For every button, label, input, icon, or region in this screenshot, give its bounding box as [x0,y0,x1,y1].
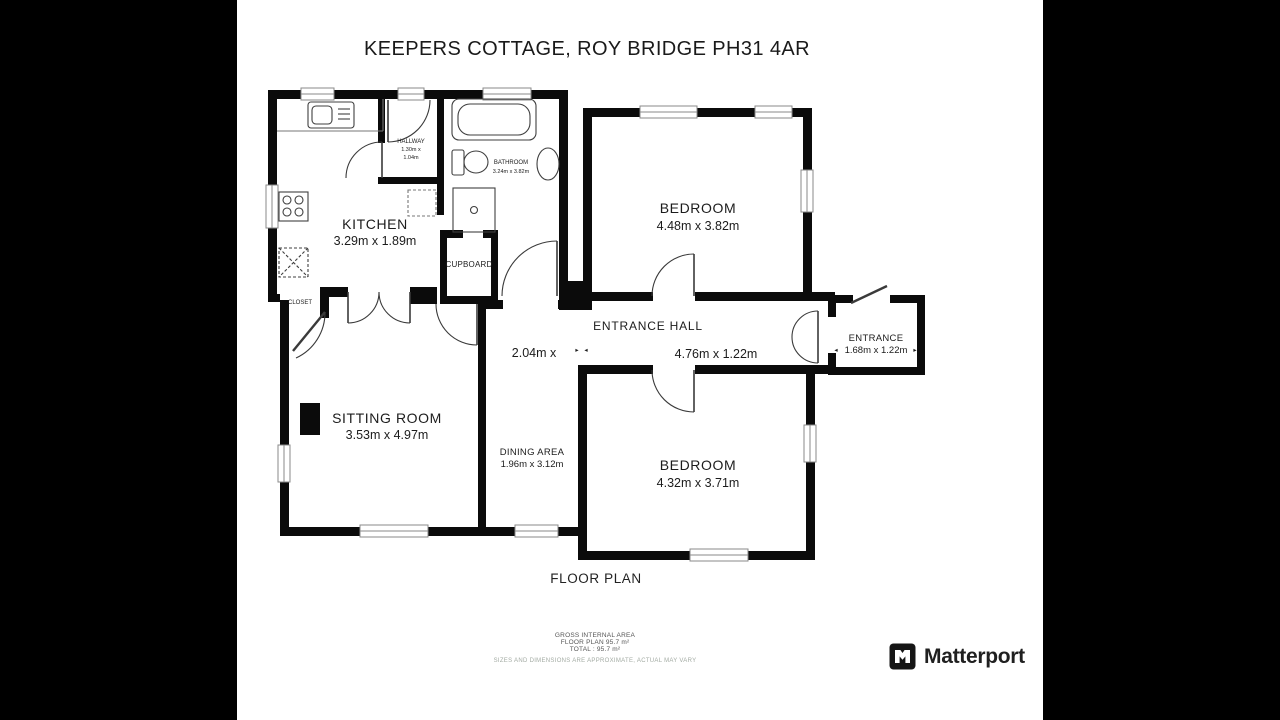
screenshot-stage: KEEPERS COTTAGE, ROY BRIDGE PH31 4AR [0,0,1280,720]
toilet [452,150,488,175]
basin [537,148,559,180]
room-labels-group: KITCHEN 3.29m x 1.89m HALLWAY 1.30m x 1.… [288,139,917,490]
bathroom-label: BATHROOM [494,160,528,166]
entrance-dim-arrow-left: ◂ [834,347,838,354]
entrance-dims: 1.68m x 1.22m [845,345,908,356]
area-summary: GROSS INTERNAL AREA FLOOR PLAN 95.7 m² T… [237,632,953,664]
fixtures-group [277,99,559,277]
floor-plan-caption: FLOOR PLAN [237,571,955,586]
matterport-branding: Matterport [889,643,1025,670]
bathroom-dims: 3.24m x 3.82m [493,169,530,175]
matterport-logo-icon [889,643,916,670]
bath-tub [452,99,536,140]
kitchen-dims: 3.29m x 1.89m [334,234,417,248]
kitchen-sink [308,102,354,128]
dim-arrow-right: ▸ [575,347,579,354]
bedroom-top-label: BEDROOM [660,200,737,216]
entrance-dim-arrow-right: ▸ [913,347,917,354]
dim-arrow-left: ◂ [584,347,588,354]
entrance-label: ENTRANCE [849,333,904,344]
windows-group [266,88,816,561]
dining-area-label: DINING AREA [500,447,565,458]
total-area: TOTAL : 95.7 m² [237,646,953,653]
entrance-hall-partial-dims: 2.04m x [512,346,557,360]
appliance-box [279,248,308,277]
hallway-label: HALLWAY [397,139,425,145]
floor-plan-area: FLOOR PLAN 95.7 m² [237,639,953,646]
entrance-hall-label: ENTRANCE HALL [593,319,703,333]
floor-plan-canvas: KITCHEN 3.29m x 1.89m HALLWAY 1.30m x 1.… [0,0,1280,720]
sitting-room-label: SITTING ROOM [332,410,442,426]
matterport-logo-text: Matterport [924,645,1025,669]
bedroom-bottom-dims: 4.32m x 3.71m [657,476,740,490]
cupboard-label: CUPBOARD [446,260,493,269]
hallway-dims-1: 1.30m x [401,147,421,153]
disclaimer-text: SIZES AND DIMENSIONS ARE APPROXIMATE, AC… [237,658,953,664]
kitchen-label: KITCHEN [342,216,408,232]
hallway-dims-2: 1.04m [403,155,419,161]
closet-label: CLOSET [288,300,312,306]
bedroom-top-dims: 4.48m x 3.82m [657,219,740,233]
sitting-room-dims: 3.53m x 4.97m [346,428,429,442]
dining-area-dims: 1.96m x 3.12m [501,459,564,470]
bedroom-bottom-label: BEDROOM [660,457,737,473]
hob [279,192,308,221]
entrance-hall-dims: 4.76m x 1.22m [675,347,758,361]
gross-internal-area-title: GROSS INTERNAL AREA [237,632,953,639]
shower [453,188,495,232]
